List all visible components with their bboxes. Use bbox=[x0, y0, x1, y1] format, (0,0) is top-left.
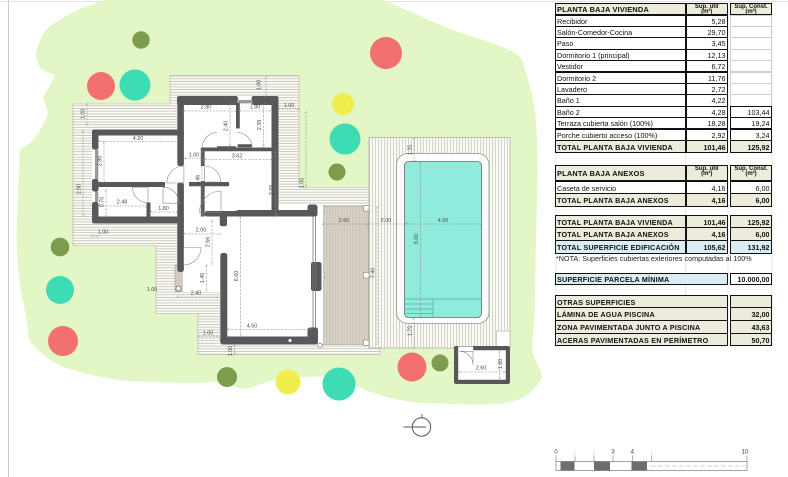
svg-text:1.60: 1.60 bbox=[498, 359, 504, 370]
svg-text:7.40: 7.40 bbox=[371, 268, 377, 279]
svg-text:2.60: 2.60 bbox=[339, 218, 350, 224]
svg-text:1.80: 1.80 bbox=[250, 105, 261, 111]
svg-text:10: 10 bbox=[742, 450, 749, 456]
svg-text:4.50: 4.50 bbox=[247, 323, 258, 329]
svg-text:6.60: 6.60 bbox=[234, 271, 240, 282]
svg-text:1.00: 1.00 bbox=[203, 330, 214, 336]
svg-text:1.00: 1.00 bbox=[147, 287, 158, 293]
svg-text:2.40: 2.40 bbox=[224, 121, 230, 132]
svg-text:4.00: 4.00 bbox=[438, 218, 449, 224]
svg-text:1.80: 1.80 bbox=[158, 206, 169, 212]
svg-text:2.38: 2.38 bbox=[257, 120, 263, 131]
svg-text:2.00: 2.00 bbox=[196, 228, 207, 234]
svg-text:3.46: 3.46 bbox=[196, 175, 202, 186]
svg-text:2.80: 2.80 bbox=[201, 105, 212, 111]
svg-text:2.80: 2.80 bbox=[77, 184, 83, 195]
svg-text:2.60: 2.60 bbox=[476, 366, 487, 372]
svg-text:3.55: 3.55 bbox=[269, 185, 275, 196]
svg-text:2.80: 2.80 bbox=[98, 156, 104, 167]
svg-text:↓: ↓ bbox=[574, 450, 577, 456]
svg-text:2.00: 2.00 bbox=[381, 218, 392, 224]
svg-text:1.00: 1.00 bbox=[189, 152, 200, 158]
svg-text:2.48: 2.48 bbox=[117, 200, 128, 206]
svg-text:2.40: 2.40 bbox=[191, 291, 202, 297]
svg-text:1.00: 1.00 bbox=[257, 80, 263, 91]
svg-text:1.00: 1.00 bbox=[81, 109, 87, 120]
svg-text:2.66: 2.66 bbox=[206, 237, 212, 248]
svg-text:1.00: 1.00 bbox=[98, 230, 109, 236]
svg-text:↓: ↓ bbox=[593, 450, 596, 456]
svg-text:3.62: 3.62 bbox=[232, 154, 243, 160]
svg-text:1.75: 1.75 bbox=[408, 326, 414, 337]
svg-text:1.00: 1.00 bbox=[228, 346, 234, 357]
svg-text:4.20: 4.20 bbox=[133, 136, 144, 142]
svg-text:1.05: 1.05 bbox=[300, 178, 306, 189]
svg-text:8.00: 8.00 bbox=[414, 234, 420, 245]
svg-text:1.35: 1.35 bbox=[408, 145, 414, 156]
svg-text:↓: ↓ bbox=[650, 450, 653, 456]
svg-text:1.40: 1.40 bbox=[200, 273, 206, 284]
svg-text:1.00: 1.00 bbox=[284, 103, 295, 109]
svg-text:0.70: 0.70 bbox=[100, 197, 106, 208]
